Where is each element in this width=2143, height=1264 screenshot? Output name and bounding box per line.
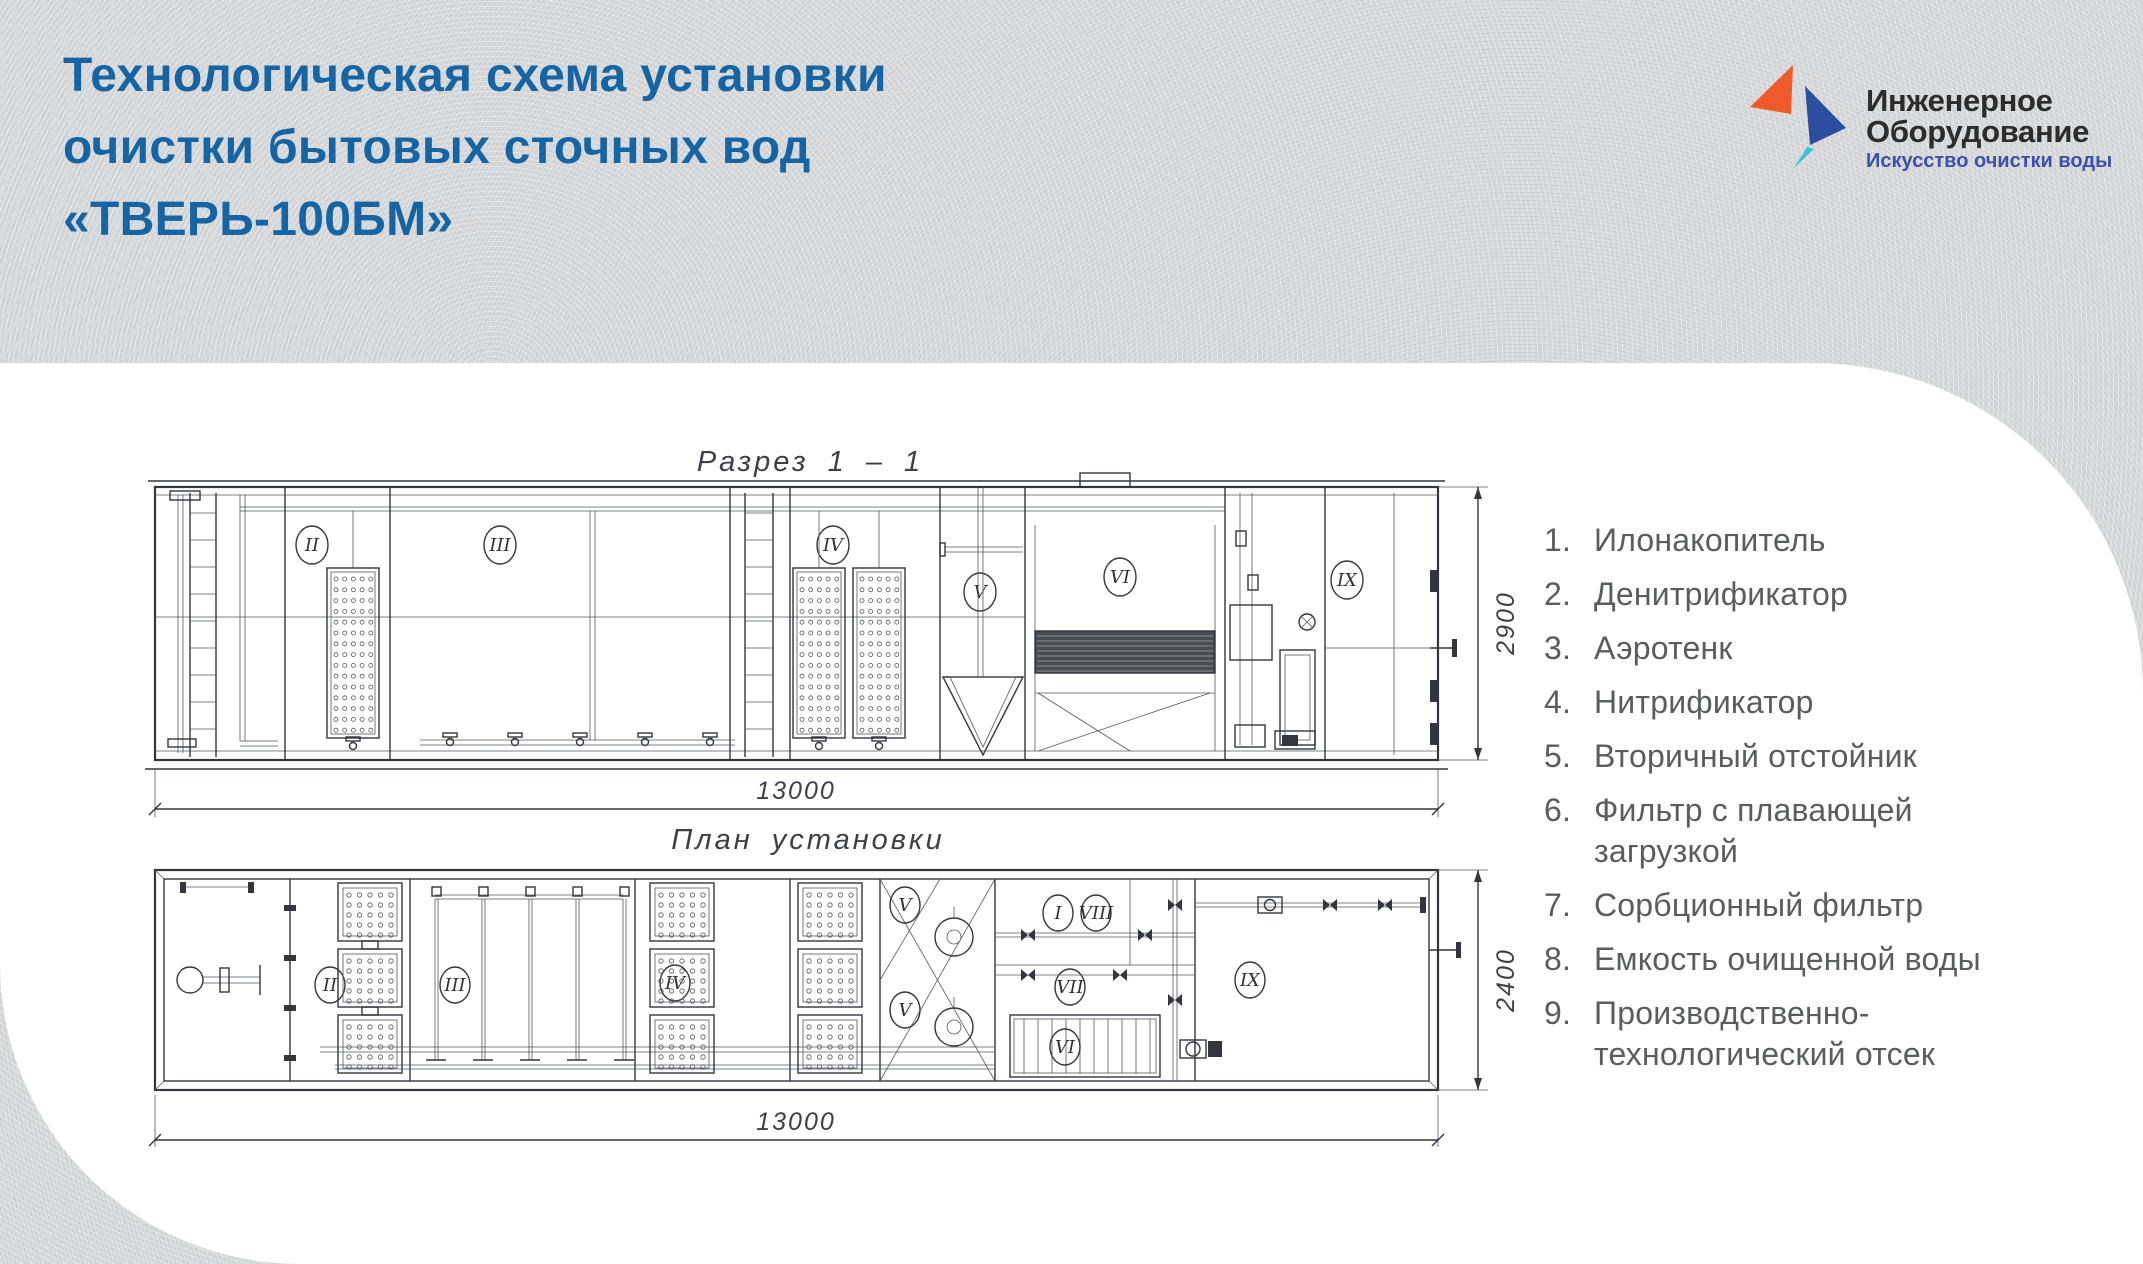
plan-numeral-8: VIII xyxy=(1079,903,1114,924)
legend-item-number: 4. xyxy=(1544,682,1594,723)
plan-numeral-4: IV xyxy=(664,973,687,994)
plan-numeral-9: IX xyxy=(1239,970,1261,991)
legend-item-text: Денитрификатор xyxy=(1594,574,2064,615)
legend-item-number: 1. xyxy=(1544,520,1594,561)
company-name: Инженерное Оборудование xyxy=(1866,85,2089,147)
title-line-3: «ТВЕРЬ-100БМ» xyxy=(63,184,887,256)
plan-numeral-6: VI xyxy=(1055,1037,1076,1058)
legend-item-text: Емкость очищенной воды xyxy=(1594,939,2064,980)
section-view: II III IV xyxy=(145,473,1520,817)
legend-item-text: Производственно-технологический отсек xyxy=(1594,993,2064,1075)
section-numeral-6: VI xyxy=(1110,567,1131,588)
section-caption: Разрез 1 – 1 xyxy=(697,446,923,478)
plan-height-dim: 2400 xyxy=(1492,948,1520,1013)
legend-item-text: Аэротенк xyxy=(1594,628,2064,669)
section-numeral-2: II xyxy=(304,535,320,556)
logo-orange-triangle xyxy=(1750,65,1793,114)
logo-teal-triangle xyxy=(1794,147,1814,168)
plan-view: II III xyxy=(149,870,1520,1147)
plan-block-stack-c xyxy=(798,883,862,1073)
plan-block-stack-a xyxy=(338,883,402,1073)
plan-caption: План установки xyxy=(671,824,945,856)
legend-item: 5.Вторичный отстойник xyxy=(1544,736,2100,777)
legend-item: 8.Емкость очищенной воды xyxy=(1544,939,2100,980)
legend-item: 3.Аэротенк xyxy=(1544,628,2100,669)
plan-width-dim: 13000 xyxy=(756,1108,836,1136)
slide: Технологическая схема установки очистки … xyxy=(0,0,2143,1264)
section-numeral-4: IV xyxy=(822,535,845,556)
legend-item-number: 8. xyxy=(1544,939,1594,980)
equipment-legend: 1.Илонакопитель 2.Денитрификатор 3.Аэрот… xyxy=(1544,520,2100,1088)
plan-numeral-1: I xyxy=(1053,903,1062,924)
plan-numeral-3: III xyxy=(443,975,466,996)
company-name-line-2: Оборудование xyxy=(1866,116,2089,147)
legend-item-number: 5. xyxy=(1544,736,1594,777)
legend-item-number: 2. xyxy=(1544,574,1594,615)
plan-numeral-5b: V xyxy=(899,1000,914,1021)
company-logo-icon xyxy=(1748,62,1848,170)
legend-item-number: 6. xyxy=(1544,790,1594,872)
title-line-1: Технологическая схема установки xyxy=(63,40,887,112)
legend-item: 2.Денитрификатор xyxy=(1544,574,2100,615)
legend-item-text: Илонакопитель xyxy=(1594,520,2064,561)
legend-item: 4.Нитрификатор xyxy=(1544,682,2100,723)
legend-item-text: Вторичный отстойник xyxy=(1594,736,2064,777)
section-numeral-9: IX xyxy=(1336,570,1358,591)
plan-numeral-5a: V xyxy=(899,895,914,916)
legend-item: 6.Фильтр с плавающей загрузкой xyxy=(1544,790,2100,872)
plan-dropper-pipes xyxy=(426,887,634,1060)
legend-item-number: 9. xyxy=(1544,993,1594,1075)
legend-item-number: 3. xyxy=(1544,628,1594,669)
section-width-dim: 13000 xyxy=(756,777,836,805)
legend-item-text: Сорбционный фильтр xyxy=(1594,885,2064,926)
legend-item-text: Нитрификатор xyxy=(1594,682,2064,723)
plan-numeral-2: II xyxy=(322,975,338,996)
legend-item: 1.Илонакопитель xyxy=(1544,520,2100,561)
section-height-dim: 2900 xyxy=(1492,591,1520,656)
page-title: Технологическая схема установки очистки … xyxy=(63,40,887,256)
logo-blue-triangle xyxy=(1805,86,1846,145)
legend-item: 7.Сорбционный фильтр xyxy=(1544,885,2100,926)
section-numeral-3: III xyxy=(488,535,511,556)
company-tagline: Искусство очистки воды xyxy=(1866,150,2112,173)
legend-item: 9.Производственно-технологический отсек xyxy=(1544,993,2100,1075)
title-line-2: очистки бытовых сточных вод xyxy=(63,112,887,184)
section-numeral-5: V xyxy=(974,582,989,603)
company-name-line-1: Инженерное xyxy=(1866,85,2089,116)
plan-numeral-7: VII xyxy=(1056,977,1084,998)
technical-drawing: Разрез 1 – 1 xyxy=(90,435,1530,1175)
legend-item-number: 7. xyxy=(1544,885,1594,926)
legend-item-text: Фильтр с плавающей загрузкой xyxy=(1594,790,2064,872)
